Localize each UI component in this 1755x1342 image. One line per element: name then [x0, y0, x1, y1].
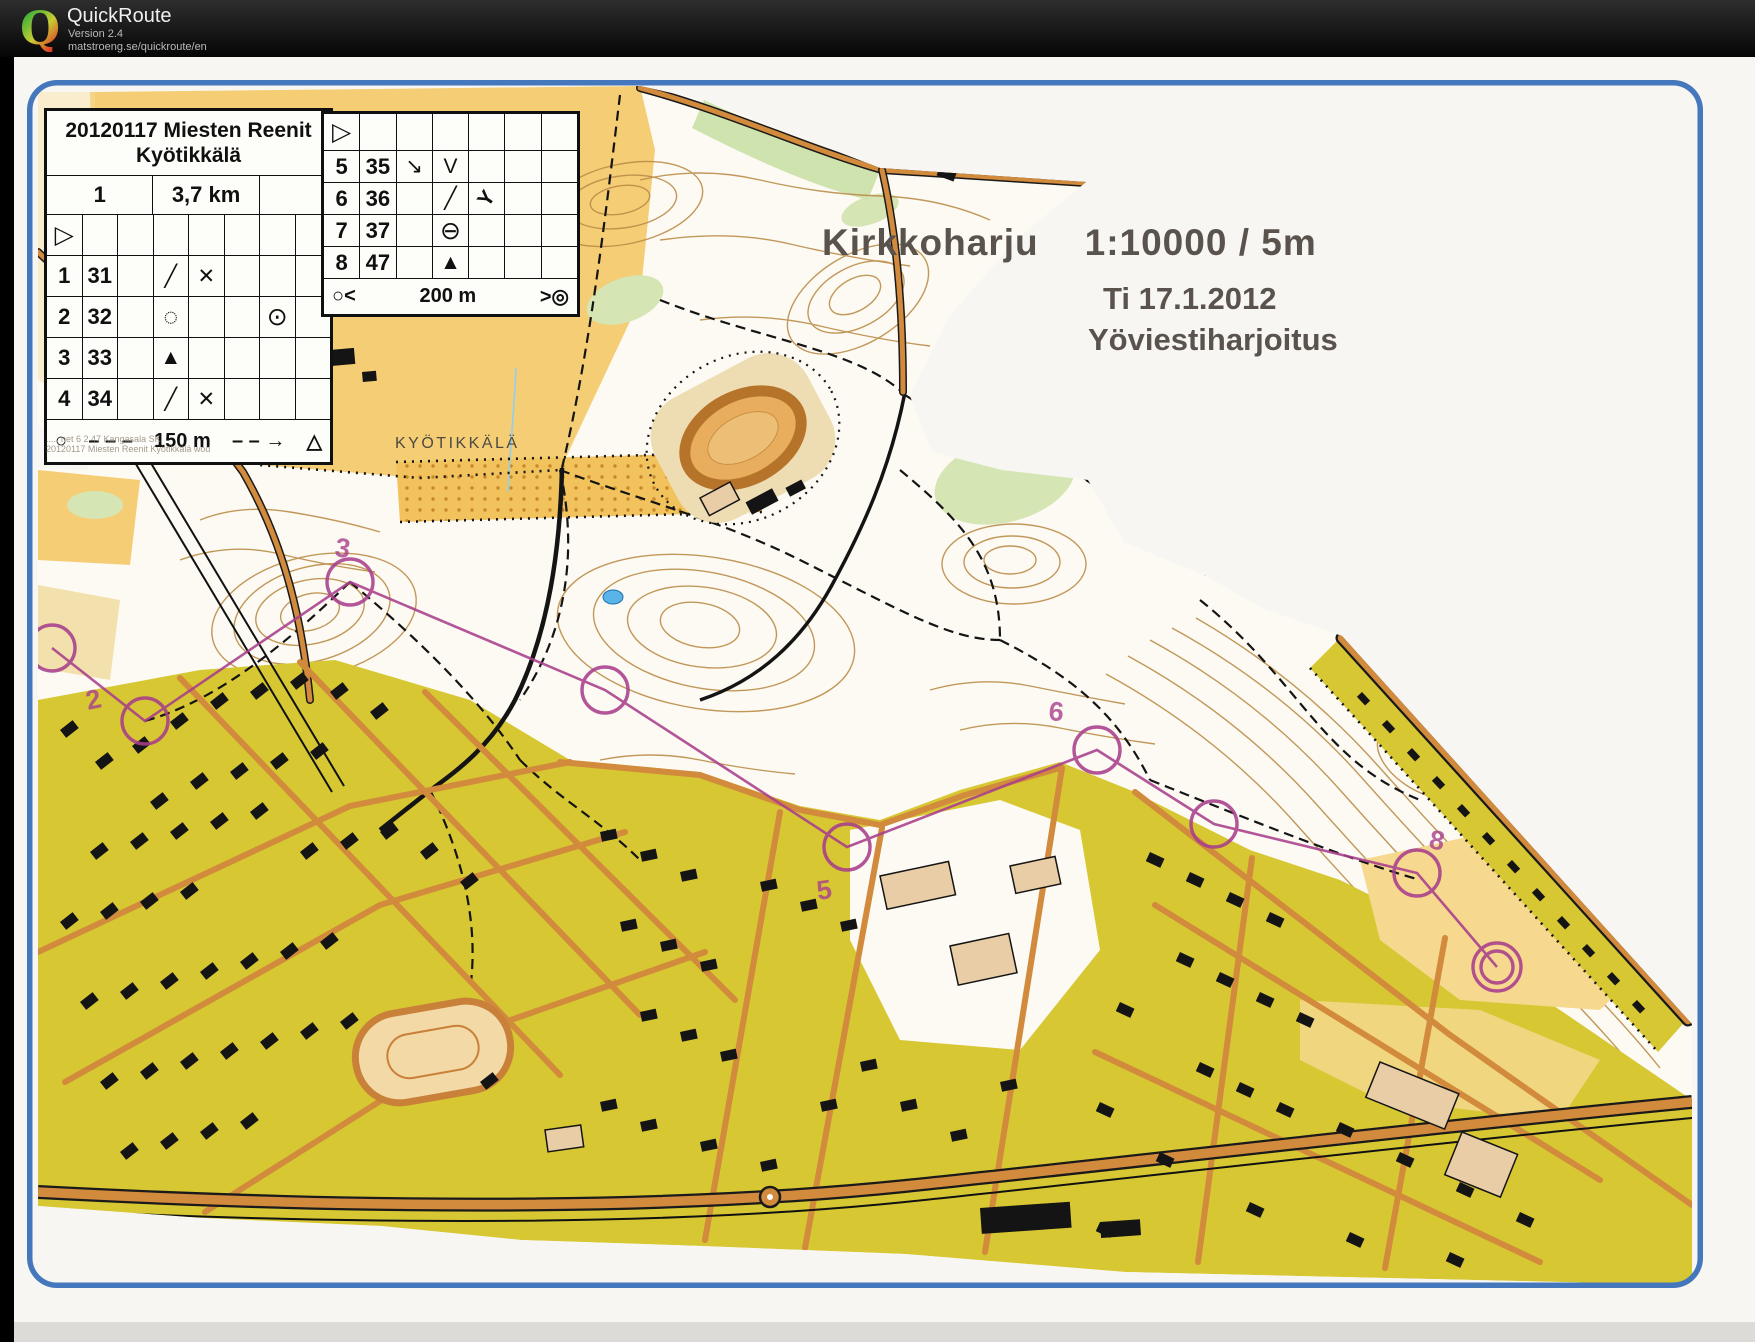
- symbol-clearing: ◌: [153, 297, 189, 337]
- map-scale: 1:10000 / 5m: [1085, 222, 1317, 263]
- control-description-card-1: 20120117 Miesten Reenit Kyötikkälä 1 3,7…: [44, 108, 333, 465]
- fine-print: ..... net 6 2 47 Kangasala SK 20120117 M…: [46, 434, 210, 454]
- symbol-reentrant: ╱: [153, 256, 189, 296]
- map-date: Ti 17.1.2012: [1103, 281, 1277, 317]
- place-label: KYÖTIKKÄLÄ: [395, 434, 520, 452]
- card2-row-6: 6 36 ╱ Y: [324, 182, 577, 214]
- symbol-depression: ⊖: [432, 215, 468, 246]
- quickroute-window: Q QuickRoute Version 2.4 matstroeng.se/q…: [0, 0, 1755, 1342]
- symbol-knoll: ▲: [153, 338, 189, 378]
- symbol-circle-dot: ⊙: [259, 297, 295, 337]
- control-number-6: 6: [1047, 696, 1065, 727]
- card1-row-2: 2 32 ◌ ⊙: [47, 296, 330, 337]
- symbol-crossing: ✕: [188, 379, 224, 419]
- quickroute-logo-icon: Q: [20, 4, 60, 52]
- app-title: QuickRoute: [67, 5, 172, 28]
- card1-title: 20120117 Miesten Reenit Kyötikkälä: [47, 111, 330, 175]
- card1-row-3: 3 33 ▲: [47, 337, 330, 378]
- app-version: Version 2.4: [68, 28, 123, 40]
- symbol-junction: Y: [468, 183, 504, 214]
- card2-start-row: ▷: [324, 114, 577, 150]
- card2-row-5: 5 35 ↘ V: [324, 150, 577, 182]
- card1-start-row: ▷: [47, 214, 330, 255]
- control-description-card-2: ▷ 5 35 ↘ V 6 36 ╱ Y 7 37 ⊖: [321, 111, 580, 317]
- symbol-reentrant: ╱: [432, 183, 468, 214]
- start-symbol: ▷: [324, 114, 359, 150]
- symbol-crossing: ✕: [188, 256, 224, 296]
- symbol-arrow-se: ↘: [396, 151, 432, 182]
- card2-row-7: 7 37 ⊖: [324, 214, 577, 246]
- symbol-gully: V: [432, 151, 468, 182]
- card1-row-4: 4 34 ╱ ✕: [47, 378, 330, 419]
- card1-course-number: 1: [47, 176, 152, 214]
- app-header-bar: Q QuickRoute Version 2.4 matstroeng.se/q…: [0, 0, 1755, 57]
- card2-row-8: 8 47 ▲: [324, 246, 577, 278]
- card2-scale-row: ○< 200 m >◎: [324, 278, 577, 314]
- start-symbol: ▷: [47, 215, 82, 255]
- card1-course-length: 3,7 km: [152, 176, 258, 214]
- symbol-knoll: ▲: [432, 247, 468, 278]
- event-name: Yöviestiharjoitus: [1088, 322, 1338, 358]
- app-url: matstroeng.se/quickroute/en: [68, 41, 207, 53]
- symbol-reentrant: ╱: [153, 379, 189, 419]
- card1-row-1: 1 31 ╱ ✕: [47, 255, 330, 296]
- map-title: Kirkkoharju1:10000 / 5m: [822, 222, 1317, 264]
